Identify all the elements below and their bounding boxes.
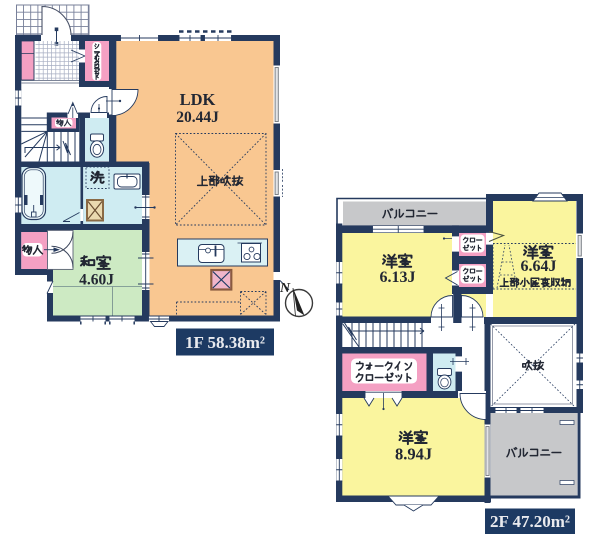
svg-text:20.44J: 20.44J (176, 109, 219, 126)
svg-text:4.60J: 4.60J (79, 272, 114, 289)
svg-text:6.13J: 6.13J (380, 269, 416, 286)
svg-text:6.64J: 6.64J (521, 258, 557, 275)
svg-text:2F 47.20m²: 2F 47.20m² (490, 512, 570, 531)
svg-text:LDK: LDK (180, 90, 216, 109)
svg-text:N: N (279, 281, 291, 296)
svg-text:8.94J: 8.94J (395, 445, 432, 464)
svg-text:1F 58.38m²: 1F 58.38m² (185, 333, 265, 352)
